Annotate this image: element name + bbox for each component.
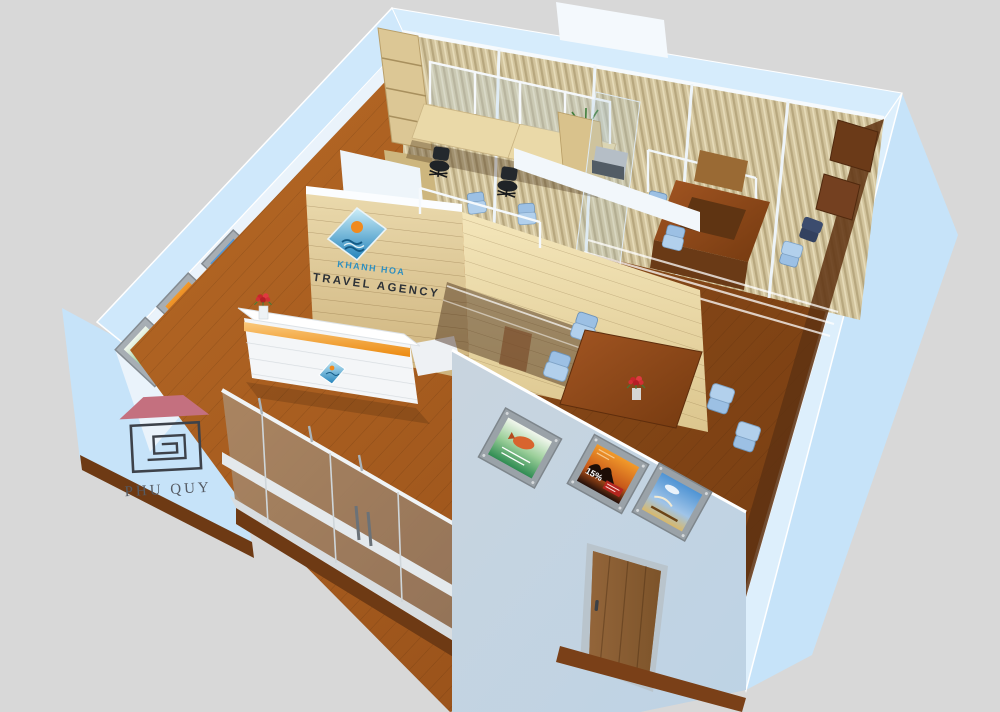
wood-chair-silhouette xyxy=(499,326,532,372)
office-3d-render: KHANH HOA TRAVEL AGENCY xyxy=(0,0,1000,712)
render-canvas: KHANH HOA TRAVEL AGENCY xyxy=(0,0,1000,712)
sun-icon xyxy=(351,221,363,233)
guest-chair-blue xyxy=(517,203,536,225)
